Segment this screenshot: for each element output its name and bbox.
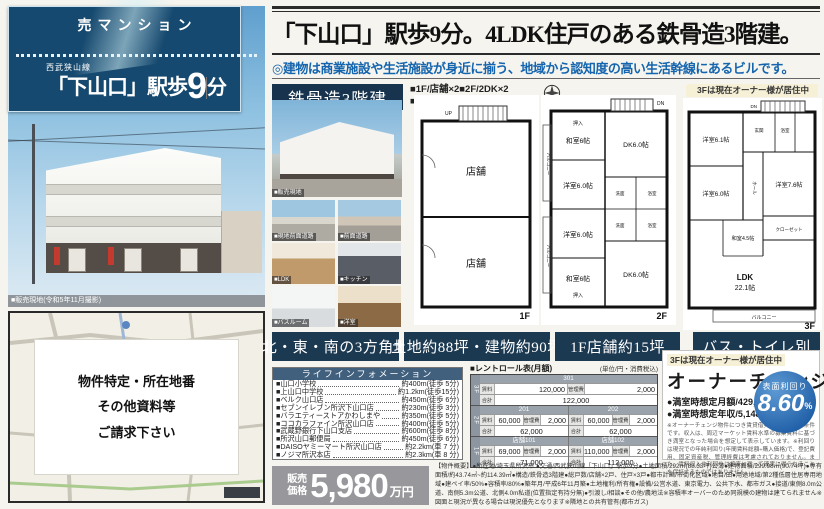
rent-amount: 110,000 <box>584 446 612 456</box>
owner-residence-tag: 3Fは現在オーナー様が居住中 <box>667 354 785 366</box>
floorplan-1f: UP 店舗 店舗 1F <box>414 95 539 325</box>
room-label: 和室4.5帖 <box>732 234 755 242</box>
stair-up-label: UP <box>445 111 453 117</box>
rent-floor-2f: 2F 201 賃料 60,000 管理費 2,000 合計 62,000 <box>471 406 657 437</box>
thumb-caption: ■前面道路 <box>338 233 370 241</box>
photo-caption: ■販売現地(令和5年11月撮影) <box>8 295 265 307</box>
plan-label-1f: 1F <box>519 311 530 321</box>
thumb-photo-street1: ■現地前面道路 <box>272 200 335 241</box>
shop-door <box>124 248 142 272</box>
oshiire-label: 押入 <box>573 120 583 127</box>
photo-building <box>280 122 394 180</box>
rent-label: 賃料 <box>480 415 495 425</box>
rent-amount: 60,000 <box>584 415 612 425</box>
top-rule-thick <box>272 6 820 9</box>
feature-box-land-size: 土地約88坪・建物約90坪 <box>404 332 550 361</box>
total-amount: 62,000 <box>584 426 657 436</box>
thumb-caption: ■キッチン <box>338 276 370 284</box>
rent-label: 賃料 <box>569 446 584 456</box>
banner-dotted-rule <box>16 54 241 57</box>
map-request-line3: ご請求下さい <box>35 420 238 445</box>
shop-door <box>68 248 86 272</box>
thumb-photo-kitchen: ■キッチン <box>338 243 401 284</box>
total-amount: 122,000 <box>495 395 657 405</box>
room-label: 玄関 <box>755 127 764 134</box>
thumb-caption: ■現地前面道路 <box>272 233 316 241</box>
room-label: DK6.0帖 <box>623 270 649 279</box>
storefront <box>46 243 221 273</box>
fee-label: 管理費 <box>612 415 630 425</box>
rent-label: 賃料 <box>569 415 584 425</box>
map-request-line2: その他資料等 <box>35 394 238 419</box>
balcony-band <box>46 184 221 195</box>
room-label-ldk: LDK <box>737 273 754 282</box>
top-rule-thin <box>272 11 820 12</box>
room-label: 浴室 <box>648 222 657 229</box>
room-label: ホール <box>752 181 757 195</box>
dotted-leader <box>376 425 400 426</box>
property-overview: 【物件概要】●所在地/埼玉県所沢市 ●交通/西武狭山線「下山口」駅歩9分●土地面… <box>435 462 822 507</box>
rent-amount: 69,000 <box>495 446 523 456</box>
room-label: 和室6帖 <box>566 274 590 283</box>
walk-minutes: 9 <box>187 65 206 106</box>
price-unit: 万円 <box>390 483 414 500</box>
stair-dn-label: DN <box>657 101 665 107</box>
dotted-leader <box>325 394 395 395</box>
life-item: ■ノジマ所沢本店約2.3km(車 8 分) <box>273 451 462 459</box>
sale-banner: 売マンション 西武狭山線 「下山口」駅歩9分 <box>8 6 241 112</box>
rent-amount: 120,000 <box>495 384 567 394</box>
room-label: 浴室 <box>781 127 790 134</box>
total-label: 合計 <box>480 395 495 405</box>
price-prefix-line2: 価格 <box>287 486 307 498</box>
rent-roll-title: ■レントロール表(月額) <box>470 363 552 374</box>
room-label-ldk-size: 22.1帖 <box>735 283 756 292</box>
flyer-page: 売マンション 西武狭山線 「下山口」駅歩9分 ■販売現地(令和5年11月撮影) … <box>0 0 824 509</box>
unit-number: 店舗102 <box>569 437 657 445</box>
exterior-photo: 売マンション 西武狭山線 「下山口」駅歩9分 <box>8 6 265 295</box>
yield-value: 8.60% <box>754 392 816 416</box>
room-label: 洋室6.0帖 <box>563 230 593 239</box>
fee-amount: 2,000 <box>541 446 569 456</box>
thumb-caption: ■LDK <box>272 276 291 284</box>
total-label: 合計 <box>480 426 495 436</box>
owner-change-panel: 3Fは現在オーナー様が居住中 オーナーチェンジ ●満室時想定月額/429,000… <box>662 350 820 460</box>
rent-unit-201: 201 賃料 60,000 管理費 2,000 合計 62,000 <box>480 406 568 436</box>
subheadline: ◎建物は商業施設や生活施設が身近に揃う、地域から認知度の高い生活幹線にあるビルで… <box>272 58 820 77</box>
thumb-photo-bedroom: ■洋室 <box>338 286 401 327</box>
yield-number: 8.60 <box>758 390 805 417</box>
price-box: 販売 価格 5,980 万円 <box>272 466 429 505</box>
walk-minutes-unit: 分 <box>206 77 226 99</box>
shop-flag <box>108 247 114 265</box>
rent-floor-3f: 3F 301 賃料 120,000 管理費 2,000 合計 122,000 <box>471 375 657 406</box>
owner-residence-tag: 3Fは現在オーナー様が居住中 <box>688 84 818 96</box>
thumb-photo-street2: ■前面道路 <box>338 200 401 241</box>
fee-label: 管理費 <box>612 446 630 456</box>
location-map: 物件特定・所在地番 その他資料等 ご請求下さい <box>8 311 265 503</box>
room-label: 洋室6.0帖 <box>563 181 593 190</box>
station-walk-label: 「下山口」駅歩9分 <box>8 68 241 104</box>
neighbor-building <box>221 211 262 273</box>
balcony-label: バルコニー <box>546 245 551 268</box>
thumb-caption: ■洋室 <box>338 319 358 327</box>
yield-percent-sign: % <box>804 401 812 411</box>
headline: 「下山口」駅歩9分。4LDK住戸のある鉄骨造3階建。 <box>272 15 820 49</box>
fee-amount: 2,000 <box>630 415 658 425</box>
floor-label: 2F <box>471 406 480 436</box>
power-line <box>8 127 265 141</box>
fee-label: 管理費 <box>523 415 541 425</box>
oshiire-label: 押入 <box>573 292 583 299</box>
rent-label: 賃料 <box>480 384 495 394</box>
fee-amount: 2,000 <box>585 384 657 394</box>
unit-number: 店舗101 <box>480 437 568 445</box>
sale-type-label: 売マンション <box>9 15 241 35</box>
floorplan-3f: DN 洋室6.1帖 玄関 浴室 洋室6.0帖 ホール 洋室7.6帖 クローゼット… <box>683 98 822 330</box>
station-name: 「下山口」駅歩 <box>47 76 187 99</box>
main-street-photo: ■販売現地 <box>272 100 402 197</box>
dotted-leader <box>382 418 399 419</box>
floor-label: 3F <box>471 375 480 405</box>
main-photo-caption: ■販売現地 <box>272 189 304 197</box>
price-value: 5,980 <box>310 469 388 502</box>
rent-roll-table: 3F 301 賃料 120,000 管理費 2,000 合計 122,000 <box>470 374 658 468</box>
room-label: DK6.0帖 <box>623 140 649 149</box>
rent-roll-unit-note: (単位/円・消費税込) <box>600 363 658 373</box>
room-label: 洋室6.1帖 <box>702 136 729 144</box>
life-information-panel: ライフインフォメーション ■山口小学校約400m(徒歩 5分) ■上山口中学校約… <box>272 367 463 460</box>
fee-label: 管理費 <box>523 446 541 456</box>
plan-label-2f: 2F <box>656 311 667 321</box>
price-prefix: 販売 価格 <box>287 474 307 497</box>
price-prefix-line1: 販売 <box>287 474 307 486</box>
map-request-line1: 物件特定・所在地番 <box>35 369 238 394</box>
total-label: 合計 <box>569 426 584 436</box>
thumb-photo-ldk: ■LDK <box>272 243 335 284</box>
unit-number: 201 <box>480 406 568 414</box>
dotted-leader <box>354 433 399 434</box>
rent-label: 賃料 <box>480 446 495 456</box>
rent-roll-panel: ■レントロール表(月額) (単位/円・消費税込) 3F 301 賃料 120,0… <box>470 363 658 468</box>
dotted-leader <box>384 449 403 450</box>
room-label: 洗面 <box>616 222 625 229</box>
room-label: 和室6帖 <box>566 136 590 145</box>
life-item-name: ■ノジマ所沢本店 <box>276 451 331 459</box>
shop-flag <box>54 247 60 265</box>
shop-door <box>180 248 198 272</box>
balcony-band <box>46 216 221 227</box>
fee-label: 管理費 <box>567 384 585 394</box>
total-amount: 62,000 <box>495 426 568 436</box>
dotted-leader <box>318 386 399 387</box>
room-label: 洋室7.6帖 <box>775 181 802 189</box>
thumb-photo-bath: ■バスルーム <box>272 286 335 327</box>
power-line <box>8 140 265 150</box>
map-request-box: 物件特定・所在地番 その他資料等 ご請求下さい <box>34 339 239 475</box>
stair-dn-label: DN <box>751 104 758 109</box>
room-label: クローゼット <box>776 226 803 233</box>
room-label-shop1: 店舗 <box>466 165 486 178</box>
gross-yield-badge: 表面利回り 8.60% <box>754 371 816 433</box>
unit-number: 202 <box>569 406 657 414</box>
rent-unit-301: 301 賃料 120,000 管理費 2,000 合計 122,000 <box>480 375 657 405</box>
room-label: 浴室 <box>648 190 657 197</box>
unit-number: 301 <box>480 375 657 383</box>
thumb-caption: ■バスルーム <box>272 319 309 327</box>
rent-amount: 60,000 <box>495 415 523 425</box>
room-label: 洗面 <box>616 190 625 197</box>
feature-box-corner-lot: 北・東・南の3方角地 <box>272 332 399 361</box>
utility-pole <box>32 124 35 284</box>
plan-label-3f: 3F <box>804 321 815 330</box>
balcony-label: バルコニー <box>752 315 777 321</box>
floorplan-2f: DN バルコニー バルコニー 押入 押入 和室6帖 洋室6.0帖 洋室6.0帖 … <box>541 95 676 325</box>
rent-unit-202: 202 賃料 60,000 管理費 2,000 合計 62,000 <box>568 406 657 436</box>
fee-amount: 2,000 <box>541 415 569 425</box>
balcony-label: バルコニー <box>546 153 551 176</box>
room-label-shop2: 店舗 <box>466 257 486 270</box>
dotted-leader <box>333 457 403 458</box>
subhead-rule <box>272 78 820 79</box>
room-label: 洋室6.0帖 <box>702 190 729 198</box>
life-item-value: 約2.3km(車 8 分) <box>405 451 459 459</box>
headline-rule <box>272 53 820 55</box>
fee-amount: 2,000 <box>630 446 658 456</box>
